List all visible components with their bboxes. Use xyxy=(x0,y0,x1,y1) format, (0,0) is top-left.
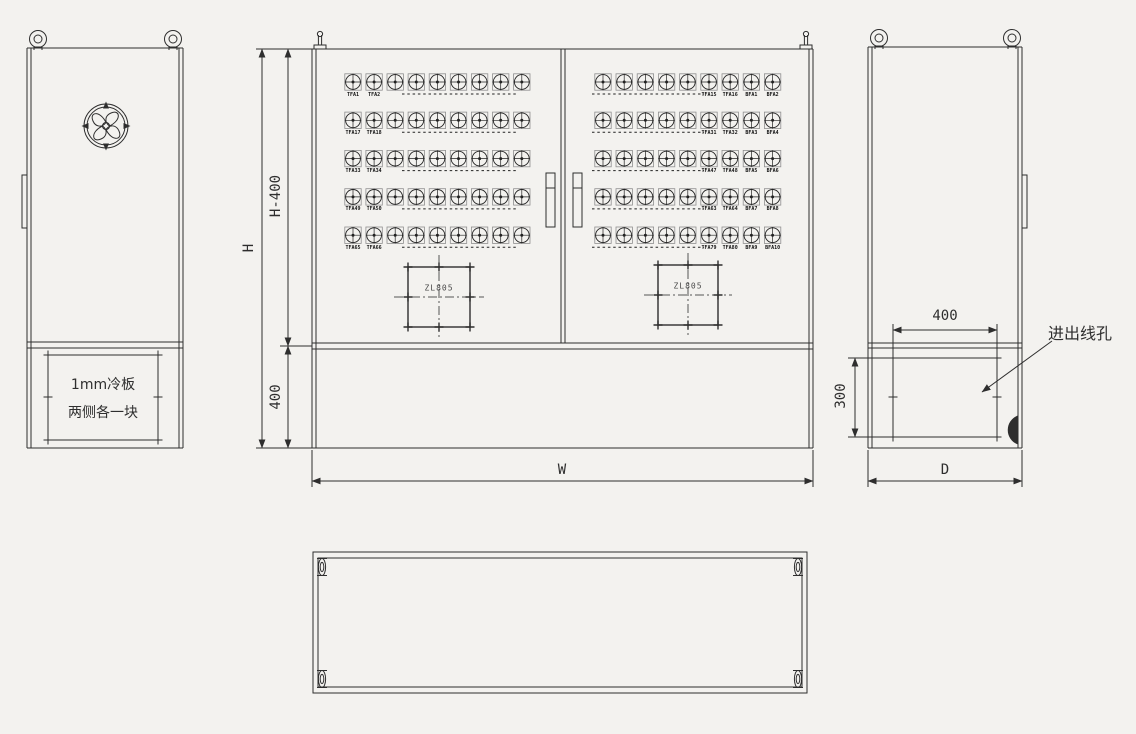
connector-symbol xyxy=(743,189,759,205)
connector-label: TFA31 xyxy=(698,130,720,136)
callout-leader xyxy=(982,341,1052,392)
connector-label: TFA48 xyxy=(719,168,741,174)
connector-symbol xyxy=(743,227,759,243)
connector-symbol xyxy=(764,227,780,243)
connector-symbol xyxy=(471,227,487,243)
connector-symbol xyxy=(722,189,738,205)
connector-symbol xyxy=(450,74,466,90)
dim-label-plinth-400: 400 xyxy=(268,384,284,409)
cold-plate-note-line2: 两侧各一块 xyxy=(68,402,138,422)
connector-symbol xyxy=(658,189,674,205)
connector-symbol xyxy=(616,112,632,128)
connector-symbol xyxy=(680,74,696,90)
connector-symbol xyxy=(637,112,653,128)
connector-symbol xyxy=(701,189,717,205)
connector-symbol xyxy=(514,74,530,90)
side-handle xyxy=(22,175,27,228)
connector-symbol xyxy=(743,112,759,128)
connector-label: BFA7 xyxy=(740,206,762,212)
connector-symbol xyxy=(722,112,738,128)
connector-symbol xyxy=(514,189,530,205)
gland-plate-left xyxy=(394,255,484,339)
connector-label: TFA63 xyxy=(698,206,720,212)
connector-label: TFA18 xyxy=(363,130,385,136)
connector-symbol xyxy=(514,112,530,128)
connector-label: TFA79 xyxy=(698,245,720,251)
connector-symbol xyxy=(493,112,509,128)
connector-label: TFA64 xyxy=(719,206,741,212)
dim-label-depth: D xyxy=(941,462,949,478)
connector-symbol xyxy=(616,150,632,166)
connector-symbol xyxy=(408,227,424,243)
connector-symbol xyxy=(616,189,632,205)
connector-symbol xyxy=(471,150,487,166)
connector-symbol xyxy=(345,227,361,243)
door-handle-left xyxy=(546,173,555,227)
connector-symbol xyxy=(493,227,509,243)
connector-label: BFA4 xyxy=(762,130,784,136)
engineering-drawing-canvas: H H-400 400 W ZL805 ZL805 1mm冷板 两侧各一块 40… xyxy=(0,0,1136,734)
connector-grid xyxy=(345,74,781,247)
cable-hole-outline xyxy=(889,354,1002,442)
connector-label: TFA33 xyxy=(342,168,364,174)
connector-symbol xyxy=(595,112,611,128)
connector-symbol xyxy=(514,150,530,166)
connector-symbol xyxy=(722,227,738,243)
connector-symbol xyxy=(514,227,530,243)
gland-plate-right xyxy=(644,253,732,337)
connector-symbol xyxy=(387,150,403,166)
dim-label-hole-width: 400 xyxy=(932,308,957,324)
top-view xyxy=(313,552,807,693)
connector-label: TFA15 xyxy=(698,92,720,98)
connector-symbol xyxy=(722,74,738,90)
gland-label-left: ZL805 xyxy=(424,284,453,293)
connector-symbol xyxy=(345,150,361,166)
connector-symbol xyxy=(764,189,780,205)
connector-symbol xyxy=(387,189,403,205)
connector-symbol xyxy=(345,189,361,205)
connector-label: TFA17 xyxy=(342,130,364,136)
connector-symbol xyxy=(680,150,696,166)
connector-label: TFA16 xyxy=(719,92,741,98)
connector-label: TFA50 xyxy=(363,206,385,212)
connector-symbol xyxy=(450,150,466,166)
connector-symbol xyxy=(595,189,611,205)
connector-symbol xyxy=(387,74,403,90)
connector-symbol xyxy=(701,112,717,128)
connector-symbol xyxy=(471,189,487,205)
connector-symbol xyxy=(493,189,509,205)
connector-symbol xyxy=(637,227,653,243)
connector-label: BFA8 xyxy=(762,206,784,212)
connector-label: BFA2 xyxy=(762,92,784,98)
connector-label: BFA3 xyxy=(740,130,762,136)
connector-symbol xyxy=(345,74,361,90)
side-handle xyxy=(1022,175,1027,228)
connector-symbol xyxy=(408,189,424,205)
connector-symbol xyxy=(429,189,445,205)
connector-symbol xyxy=(595,150,611,166)
connector-symbol xyxy=(429,74,445,90)
connector-symbol xyxy=(680,112,696,128)
dim-label-hole-height: 300 xyxy=(833,383,849,408)
dim-label-width: W xyxy=(558,462,566,478)
connector-label: TFA80 xyxy=(719,245,741,251)
connector-symbol xyxy=(595,74,611,90)
connector-symbol xyxy=(637,189,653,205)
connector-symbol xyxy=(408,150,424,166)
connector-symbol xyxy=(680,189,696,205)
right-side-view xyxy=(868,30,1027,449)
connector-symbol xyxy=(387,112,403,128)
connector-symbol xyxy=(722,150,738,166)
connector-label: TFA32 xyxy=(719,130,741,136)
connector-label: BFA9 xyxy=(740,245,762,251)
connector-symbol xyxy=(366,112,382,128)
connector-symbol xyxy=(680,227,696,243)
connector-symbol xyxy=(408,112,424,128)
connector-symbol xyxy=(764,74,780,90)
connector-symbol xyxy=(345,112,361,128)
connector-symbol xyxy=(701,74,717,90)
door-handle-right xyxy=(573,173,582,227)
connector-label: BFA6 xyxy=(762,168,784,174)
connector-symbol xyxy=(366,150,382,166)
connector-label: TFA47 xyxy=(698,168,720,174)
connector-symbol xyxy=(429,150,445,166)
cable-hole-callout: 进出线孔 xyxy=(1048,320,1112,344)
connector-symbol xyxy=(616,227,632,243)
connector-symbol xyxy=(366,74,382,90)
connector-label: BFA1 xyxy=(740,92,762,98)
dim-label-height: H xyxy=(241,244,257,252)
connector-symbol xyxy=(637,74,653,90)
front-dimensions xyxy=(256,49,813,487)
connector-symbol xyxy=(743,74,759,90)
cold-plate-outline xyxy=(44,351,163,445)
connector-symbol xyxy=(429,112,445,128)
connector-symbol xyxy=(701,150,717,166)
gland-label-right: ZL805 xyxy=(673,282,702,291)
connector-symbol xyxy=(743,150,759,166)
connector-symbol xyxy=(366,189,382,205)
connector-label: TFA2 xyxy=(363,92,385,98)
connector-label: BFA10 xyxy=(762,245,784,251)
connector-symbol xyxy=(450,227,466,243)
dim-label-height-minus-400: H-400 xyxy=(268,175,284,217)
connector-symbol xyxy=(658,227,674,243)
fan-icon xyxy=(82,102,131,151)
cold-plate-note-line1: 1mm冷板 xyxy=(71,374,135,394)
connector-symbol xyxy=(637,150,653,166)
connector-symbol xyxy=(658,150,674,166)
connector-label: TFA66 xyxy=(363,245,385,251)
connector-symbol xyxy=(450,189,466,205)
corner-detail xyxy=(1008,416,1018,444)
connector-symbol xyxy=(471,74,487,90)
connector-symbol xyxy=(701,227,717,243)
connector-label: BFA5 xyxy=(740,168,762,174)
connector-symbol xyxy=(493,150,509,166)
connector-symbol xyxy=(764,112,780,128)
connector-symbol xyxy=(471,112,487,128)
connector-label: TFA65 xyxy=(342,245,364,251)
connector-symbol xyxy=(764,150,780,166)
connector-symbol xyxy=(366,227,382,243)
connector-symbol xyxy=(450,112,466,128)
connector-symbol xyxy=(493,74,509,90)
connector-symbol xyxy=(616,74,632,90)
connector-label: TFA1 xyxy=(342,92,364,98)
connector-symbol xyxy=(387,227,403,243)
drawing-linework xyxy=(0,0,1136,734)
connector-label: TFA49 xyxy=(342,206,364,212)
connector-symbol xyxy=(429,227,445,243)
connector-symbol xyxy=(658,112,674,128)
connector-symbol xyxy=(595,227,611,243)
connector-label: TFA34 xyxy=(363,168,385,174)
connector-symbol xyxy=(408,74,424,90)
connector-symbol xyxy=(658,74,674,90)
